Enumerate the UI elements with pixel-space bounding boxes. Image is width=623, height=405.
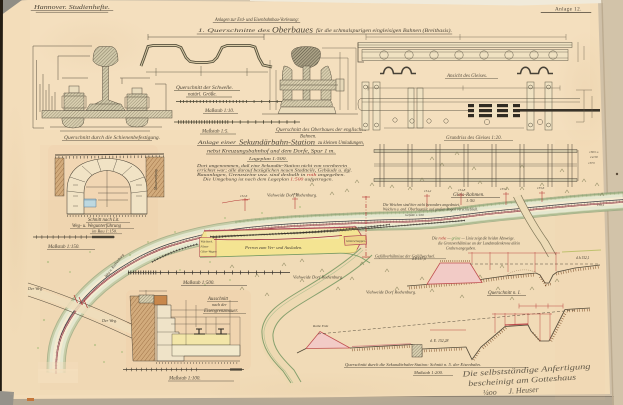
- svg-text:Fässer: Fässer: [200, 245, 210, 249]
- svg-text:nach der: nach der: [212, 302, 227, 307]
- svg-text:Querschnitt des Oberbaues der: Querschnitt des Oberbaues der englischen: [276, 127, 367, 133]
- svg-text:Graben angegeben.: Graben angegeben.: [446, 247, 476, 251]
- svg-text:Viehweide Dorf Rothenburg.: Viehweide Dorf Rothenburg.: [293, 275, 343, 280]
- svg-text:Viehweide Dorf Rothenburg.: Viehweide Dorf Rothenburg.: [366, 290, 416, 295]
- svg-text:Wächterb.: Wächterb.: [201, 240, 214, 244]
- svg-text:Die rothe — grüne — Linie zeig: Die rothe — grüne — Linie zeigt die beid…: [431, 237, 515, 241]
- svg-text:Hannover. Studienhefte.: Hannover. Studienhefte.: [33, 4, 110, 11]
- svg-text:Maueranfang: Maueranfang: [154, 169, 158, 191]
- svg-text:Maßstab 1:10.: Maßstab 1:10.: [204, 109, 234, 114]
- svg-text:Weichen u. and. Oberbauteile a: Weichen u. and. Oberbauteile auf großen …: [383, 208, 478, 212]
- svg-text:Maßstab 1:200.: Maßstab 1:200.: [413, 370, 443, 375]
- svg-text:Der Weg.: Der Weg.: [27, 286, 43, 291]
- svg-text:Querschnitt der Schwelle.: Querschnitt der Schwelle.: [176, 85, 233, 91]
- svg-text:1869 u.: 1869 u.: [589, 150, 599, 154]
- svg-text:die Grenzverhältnisse an der L: die Grenzverhältnisse an der Landstraßen…: [438, 242, 520, 246]
- svg-text:im Bau 1:150.: im Bau 1:150.: [92, 229, 117, 234]
- svg-text:Maßstab 1:500.: Maßstab 1:500.: [182, 281, 215, 286]
- svg-text:Lageplan 1:500.: Lageplan 1:500.: [248, 156, 287, 161]
- svg-text:für die schmalspurigen einglei: für die schmalspurigen eingleisigen Bahn…: [316, 27, 452, 34]
- svg-text:Querschnitt durch die Sekundär: Querschnitt durch die Sekundärbahn-Stati…: [345, 362, 481, 367]
- svg-text:Der Weg.: Der Weg.: [101, 318, 117, 323]
- svg-text:Anlage 12.: Anlage 12.: [555, 7, 582, 13]
- svg-text:Maßstab 1:100.: Maßstab 1:100.: [168, 377, 201, 382]
- svg-text:Güter-Wagen: Güter-Wagen: [201, 250, 217, 254]
- svg-text:Oberbaues: Oberbaues: [272, 25, 314, 35]
- svg-text:Die Umgebung ist nach dem Lage: Die Umgebung ist nach dem Lageplan 1:500…: [202, 178, 334, 182]
- svg-text:Maßstab 1:150.: Maßstab 1:150.: [47, 245, 80, 250]
- svg-text:Maßstab 1:5.: Maßstab 1:5.: [201, 130, 229, 135]
- svg-text:Güterschuppen: Güterschuppen: [346, 239, 366, 243]
- svg-text:Sekundärbahn-Station: Sekundärbahn-Station: [239, 138, 315, 147]
- svg-text:Querschnitt durch die Schienen: Querschnitt durch die Schienenbefestigun…: [64, 134, 160, 141]
- svg-text:Gefälle 1:100: Gefälle 1:100: [405, 213, 424, 217]
- svg-text:Viehweide Dorf Rothenburg.: Viehweide Dorf Rothenburg.: [267, 193, 317, 198]
- svg-text:1. Querschnitte des: 1. Querschnitte des: [198, 28, 270, 34]
- svg-text:1870: 1870: [588, 161, 595, 165]
- svg-text:1:50.: 1:50.: [466, 198, 476, 203]
- svg-text:14.50: 14.50: [590, 155, 598, 159]
- svg-text:Rothe Erde: Rothe Erde: [312, 324, 329, 328]
- svg-text:Perron zum Ver- und Ausladen.: Perron zum Ver- und Ausladen.: [244, 245, 302, 250]
- svg-text:Gefällverhältnisse der Gefällw: Gefällverhältnisse der Gefällwechsel.: [375, 254, 435, 259]
